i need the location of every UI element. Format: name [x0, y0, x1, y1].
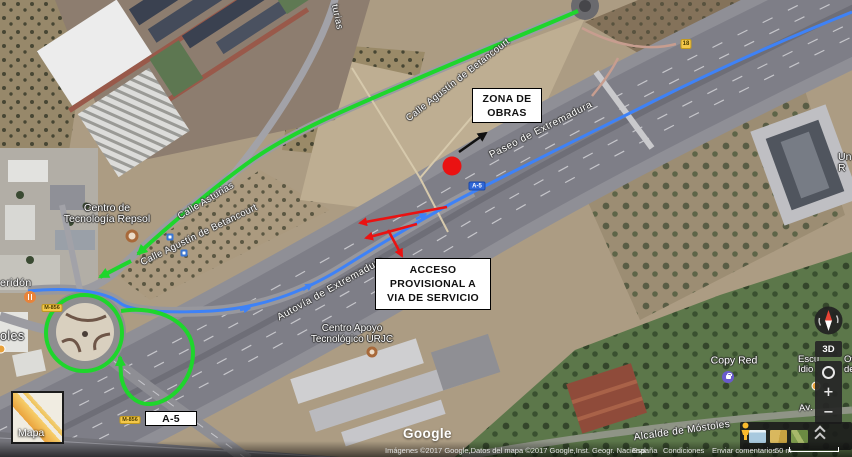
place-label-meridon-partial: eridón: [0, 277, 32, 289]
universidad-line2: R: [838, 162, 846, 174]
place-label-copy-red[interactable]: Copy Red: [711, 356, 758, 367]
street-label-avenida: Av.: [798, 402, 813, 414]
urjc-line2: Tecnológico URJC: [311, 334, 393, 345]
compass-icon: [814, 306, 843, 335]
zoom-in-button[interactable]: +: [823, 387, 834, 399]
acceso-line2: PROVISIONAL A: [376, 277, 490, 291]
google-logo: Google: [403, 426, 452, 441]
scale-bar: [789, 447, 839, 452]
route-green-main: [138, 11, 578, 254]
zona-line2: OBRAS: [473, 106, 541, 120]
m856-road-shield-upper: M-856: [42, 304, 63, 312]
3d-button[interactable]: 3D: [815, 341, 842, 357]
terms-link[interactable]: Condiciones: [663, 446, 704, 455]
route-green-entry: [100, 261, 131, 277]
pegman-icon[interactable]: [740, 422, 751, 441]
restaurant-poi-icon[interactable]: [24, 291, 36, 303]
m856-road-shield-lower: M-856: [120, 416, 141, 424]
acceso-line1: ACCESO: [376, 263, 490, 277]
feedback-link[interactable]: Enviar comentarios: [712, 446, 776, 455]
oficial-line2: de: [844, 364, 852, 375]
a5-route-callout: A-5: [145, 411, 197, 426]
knife-glyph: [31, 294, 33, 300]
country-label: España: [632, 446, 657, 455]
acceso-line3: VIA DE SERVICIO: [376, 291, 490, 305]
place-label-centro-apoyo-urjc[interactable]: Centro Apoyo Tecnológico URJC: [311, 323, 393, 345]
urjc-poi-icon[interactable]: [367, 347, 378, 358]
shopping-bag-glyph: [726, 375, 731, 380]
place-label-escuela-partial-right: Ofi de: [844, 355, 852, 374]
repsol-poi-icon[interactable]: [126, 230, 139, 243]
zona-line1: ZONA DE: [473, 92, 541, 106]
a5-road-shield: A-5: [469, 182, 486, 191]
compass-control[interactable]: [814, 306, 843, 335]
map-type-label: Mapa: [18, 427, 44, 439]
zona-obras-marker: [443, 157, 462, 176]
route-green-loop: [120, 310, 193, 404]
bus-stop-icon-1[interactable]: [167, 234, 174, 241]
place-label-centro-repsol[interactable]: Centro de Tecnología Repsol: [64, 203, 150, 225]
red-cut-line-1: [360, 207, 447, 223]
tilt-button[interactable]: [822, 366, 835, 379]
zoom-out-button[interactable]: −: [823, 407, 834, 419]
zona-obras-pointer-arrow: [459, 133, 486, 152]
a5-box-text: A-5: [146, 412, 196, 426]
repsol-line2: Tecnología Repsol: [64, 213, 150, 225]
urjc-line1: Centro Apoyo: [322, 323, 383, 334]
exit-18-shield: 18: [681, 39, 692, 49]
zoom-control-stack: + −: [815, 361, 842, 424]
place-label-mostoles-partial: oles: [0, 329, 25, 343]
acceso-provisional-callout: ACCESO PROVISIONAL A VIA DE SERVICIO: [375, 258, 491, 310]
map-canvas[interactable]: Calle Agustín de Betancourt Calle Agustí…: [0, 0, 852, 457]
fork-glyph: [28, 294, 30, 300]
place-label-universidad-partial: Un R: [838, 152, 851, 174]
imagery-attribution-text: Imágenes ©2017 Google,Datos del mapa ©20…: [385, 446, 646, 455]
map-type-thumbnail[interactable]: Mapa: [11, 391, 64, 444]
escuela-line2: Idio: [798, 364, 813, 375]
route-annotations: [0, 0, 852, 457]
bus-stop-icon-2[interactable]: [181, 250, 188, 257]
copy-red-shop-poi-icon[interactable]: [722, 371, 734, 383]
zona-de-obras-callout: ZONA DE OBRAS: [472, 88, 542, 123]
